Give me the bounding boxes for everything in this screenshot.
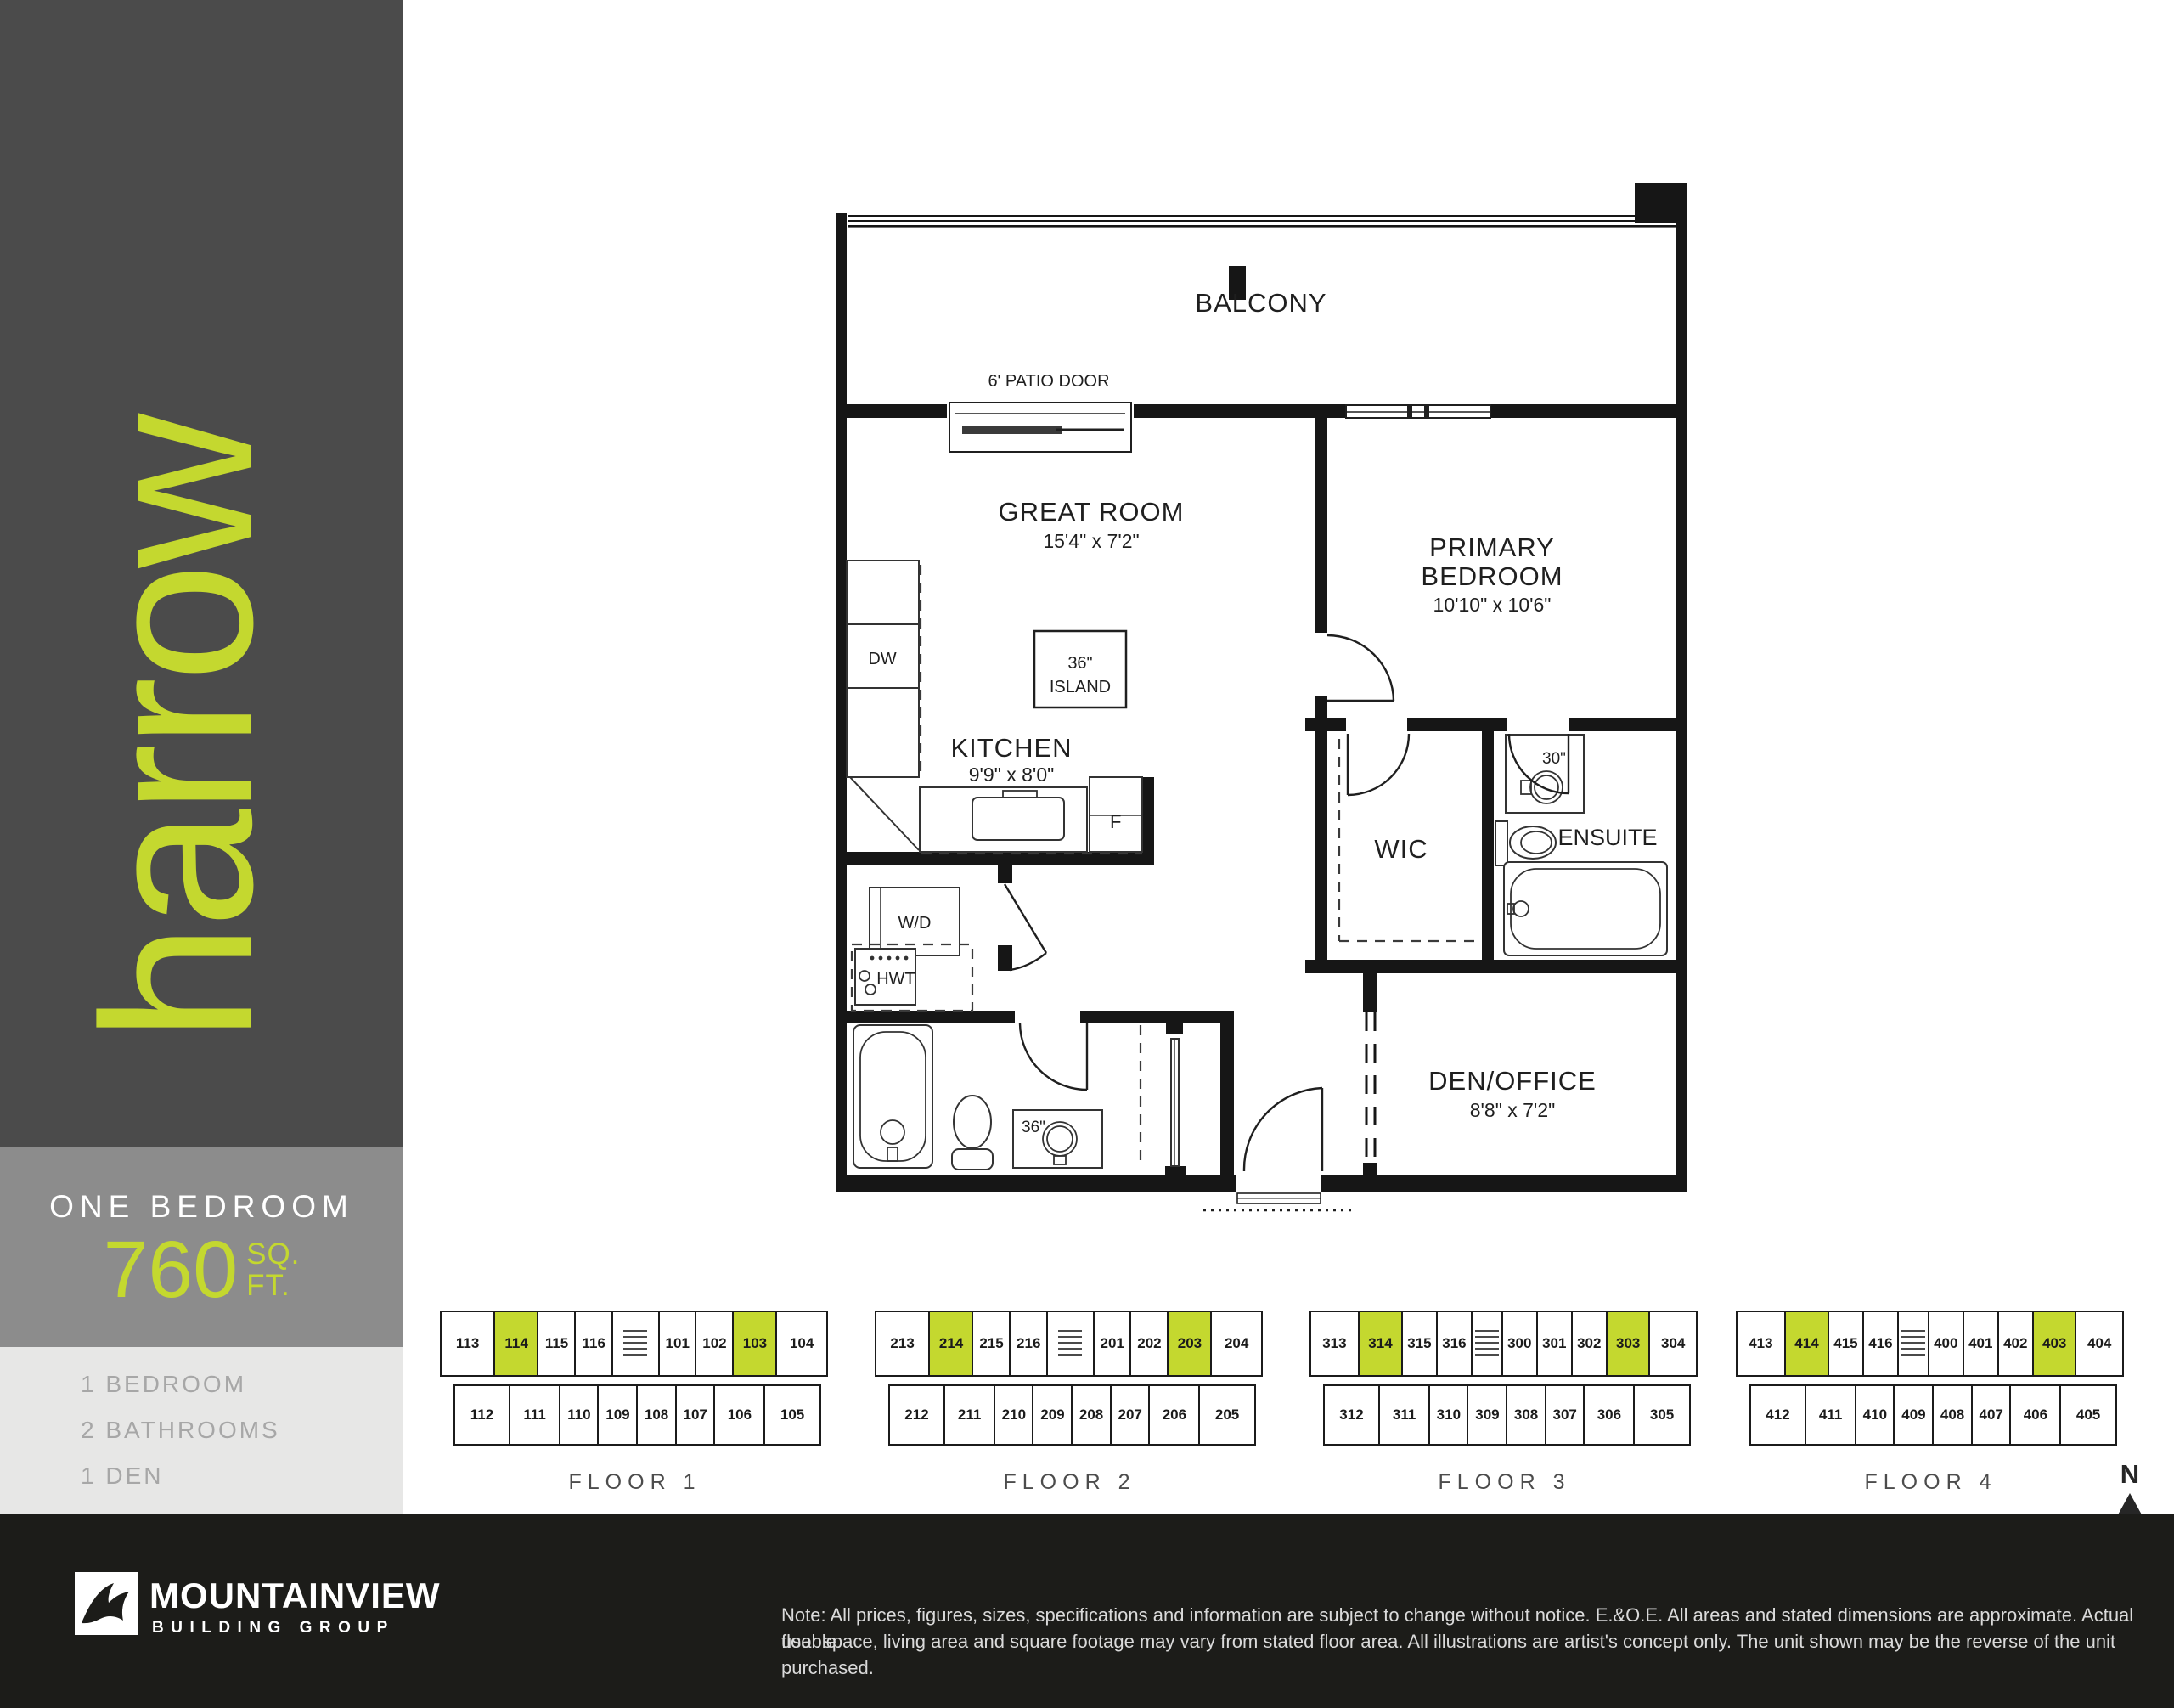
unit-cell: 110: [559, 1384, 600, 1446]
hwt-label: HWT: [876, 970, 915, 989]
unit-number: 212: [904, 1406, 928, 1423]
unit-number: 408: [1940, 1406, 1964, 1423]
unit-cell: 416: [1862, 1311, 1900, 1377]
kitchen-fixtures: [847, 561, 1142, 854]
unit-number: 300: [1507, 1335, 1531, 1352]
unit-cell-highlighted: 314: [1358, 1311, 1403, 1377]
floor-plate-3: 3133143153163003013023033043123113103093…: [1311, 1311, 1698, 1495]
unit-cell: 210: [994, 1384, 1034, 1446]
unit-cell: 206: [1148, 1384, 1200, 1446]
unit-cell: 304: [1648, 1311, 1698, 1377]
unit-number: 310: [1437, 1406, 1461, 1423]
north-label: N: [2111, 1459, 2149, 1490]
unit-number: 402: [2003, 1335, 2027, 1352]
unit-number: 410: [1863, 1406, 1887, 1423]
unit-number: 316: [1442, 1335, 1466, 1352]
unit-number: 114: [504, 1335, 527, 1352]
unit-cell: 305: [1633, 1384, 1691, 1446]
balcony-label: BALCONY: [1195, 288, 1326, 318]
unit-number: 102: [702, 1335, 726, 1352]
primary-bedroom-dims: 10'10" x 10'6": [1433, 594, 1552, 616]
unit-number: 404: [2087, 1335, 2111, 1352]
unit-cell: 104: [775, 1311, 828, 1377]
unit-cell-highlighted: 403: [2032, 1311, 2077, 1377]
unit-type-label: ONE BEDROOM: [49, 1189, 354, 1225]
unit-number: 115: [545, 1335, 568, 1352]
main-bath-fixtures: [853, 1025, 1102, 1170]
stairs-icon: [623, 1330, 647, 1357]
unit-cell: 410: [1855, 1384, 1895, 1446]
unit-number: 301: [1542, 1335, 1566, 1352]
unit-summary-band: ONE BEDROOM 760 SQ. FT.: [0, 1147, 403, 1347]
unit-number: 304: [1661, 1335, 1685, 1352]
plate-row-top: 213214215216201202203204: [876, 1311, 1263, 1377]
footer-brand-subtitle: BUILDING GROUP: [152, 1619, 395, 1638]
unit-cell: 315: [1401, 1311, 1439, 1377]
unit-cell: 106: [713, 1384, 765, 1446]
plate-row-bottom: 412411410409408407406405: [1751, 1384, 2117, 1446]
north-compass: N: [2111, 1459, 2149, 1518]
unit-cell: 215: [972, 1311, 1011, 1377]
den-office-dims: 8'8" x 7'2": [1470, 1099, 1556, 1121]
floor-plate-4: 4134144154164004014024034044124114104094…: [1738, 1311, 2124, 1495]
unit-cell: 300: [1501, 1311, 1539, 1377]
feature-den: 1 DEN: [81, 1463, 403, 1490]
unit-number: 315: [1407, 1335, 1431, 1352]
unit-number: 216: [1017, 1335, 1040, 1352]
unit-cell: 208: [1071, 1384, 1112, 1446]
floor-label: FLOOR 2: [876, 1470, 1263, 1495]
brand-wordmark: harrow: [72, 306, 293, 1155]
plate-row-bottom: 212211210209208207206205: [890, 1384, 1256, 1446]
unit-cell: 113: [440, 1311, 496, 1377]
unit-number: 214: [939, 1335, 963, 1352]
unit-cell: 405: [2059, 1384, 2117, 1446]
unit-cell: 406: [2009, 1384, 2061, 1446]
unit-area: 760 SQ. FT.: [104, 1233, 301, 1306]
unit-number: 409: [1901, 1406, 1925, 1423]
kitchen-dims: 9'9" x 8'0": [969, 764, 1055, 786]
feature-bedroom: 1 BEDROOM: [81, 1371, 403, 1398]
laundry-fixtures: [852, 888, 972, 1011]
unit-cell: 313: [1309, 1311, 1360, 1377]
mountainview-logo-icon: [75, 1572, 138, 1635]
unit-number: 303: [1616, 1335, 1640, 1352]
unit-cell-highlighted: 214: [928, 1311, 974, 1377]
unit-number: 414: [1794, 1335, 1818, 1352]
vanity-36-label: 36": [1022, 1119, 1045, 1136]
floor-plate-1: 1131141151161011021031041121111101091081…: [442, 1311, 828, 1495]
unit-cell: 209: [1032, 1384, 1073, 1446]
unit-number: 411: [1819, 1406, 1842, 1423]
unit-cell: 207: [1110, 1384, 1151, 1446]
area-units: SQ. FT.: [246, 1233, 300, 1301]
unit-number: 112: [470, 1406, 493, 1423]
primary-bedroom-label-2: BEDROOM: [1421, 561, 1563, 591]
unit-cell: 411: [1805, 1384, 1856, 1446]
unit-number: 205: [1215, 1406, 1239, 1423]
unit-number: 309: [1475, 1406, 1499, 1423]
dishwasher-label: DW: [868, 650, 896, 668]
unit-cell: 109: [597, 1384, 638, 1446]
unit-cell: 301: [1536, 1311, 1574, 1377]
unit-number: 210: [1002, 1406, 1026, 1423]
unit-number: 415: [1833, 1335, 1857, 1352]
disclaimer-line-2: floor space, living area and square foot…: [781, 1628, 2161, 1681]
fridge-label: F: [1110, 811, 1121, 832]
unit-cell: 101: [658, 1311, 697, 1377]
unit-cell: 402: [1997, 1311, 2035, 1377]
plate-row-top: 113114115116101102103104: [442, 1311, 828, 1377]
unit-number: 406: [2024, 1406, 2047, 1423]
unit-cell-highlighted: 414: [1784, 1311, 1829, 1377]
plate-row-bottom: 112111110109108107106105: [455, 1384, 821, 1446]
area-unit-ft: FT.: [246, 1270, 300, 1301]
den-dashed-wall: [1366, 1012, 1375, 1168]
unit-number: 106: [728, 1406, 752, 1423]
unit-number: 306: [1597, 1406, 1621, 1423]
unit-number: 416: [1868, 1335, 1892, 1352]
unit-cell: 205: [1198, 1384, 1256, 1446]
den-office-label: DEN/OFFICE: [1428, 1066, 1597, 1096]
unit-cell: 310: [1428, 1384, 1469, 1446]
unit-number: 207: [1118, 1406, 1141, 1423]
unit-number: 400: [1934, 1335, 1957, 1352]
bedroom-window: [1346, 405, 1490, 418]
plate-row-bottom: 312311310309308307306305: [1325, 1384, 1691, 1446]
unit-cell: 111: [509, 1384, 560, 1446]
unit-cell: 309: [1467, 1384, 1507, 1446]
unit-number: 105: [780, 1406, 804, 1423]
feature-bathrooms: 2 BATHROOMS: [81, 1417, 403, 1444]
unit-cell: 408: [1932, 1384, 1973, 1446]
unit-number: 412: [1766, 1406, 1789, 1423]
unit-floor-plan: BALCONY 6' PATIO DOOR GREAT ROOM 15'4" x…: [836, 183, 1703, 1219]
unit-number: 108: [645, 1406, 668, 1423]
unit-cell: 404: [2075, 1311, 2124, 1377]
unit-cell: 307: [1545, 1384, 1585, 1446]
unit-cell: 202: [1129, 1311, 1169, 1377]
unit-cell: 316: [1436, 1311, 1473, 1377]
plate-row-top: 413414415416400401402403404: [1738, 1311, 2124, 1377]
unit-number: 104: [790, 1335, 814, 1352]
unit-cell: 216: [1009, 1311, 1048, 1377]
washer-dryer-label: W/D: [898, 914, 932, 933]
unit-number: 109: [605, 1406, 629, 1423]
unit-cell: 115: [537, 1311, 576, 1377]
unit-cell: 108: [636, 1384, 677, 1446]
unit-number: 204: [1225, 1335, 1248, 1352]
unit-cell: 306: [1583, 1384, 1635, 1446]
unit-number: 201: [1101, 1335, 1124, 1352]
unit-cell: 407: [1971, 1384, 2012, 1446]
island-label: ISLAND: [1050, 678, 1111, 696]
unit-cell: 212: [888, 1384, 946, 1446]
stair-core: [1897, 1311, 1929, 1377]
page: { "colors": { "brand_lime": "#c4d82f", "…: [0, 0, 2174, 1708]
island-size-label: 36": [1067, 654, 1092, 673]
unit-cell-highlighted: 103: [732, 1311, 778, 1377]
stair-core: [1046, 1311, 1095, 1377]
unit-number: 308: [1514, 1406, 1538, 1423]
unit-number: 313: [1322, 1335, 1346, 1352]
stair-core: [611, 1311, 660, 1377]
entry-threshold: [1203, 1193, 1356, 1210]
unit-number: 116: [583, 1335, 605, 1352]
floor-plate-2: 2132142152162012022032042122112102092082…: [876, 1311, 1263, 1495]
area-value: 760: [104, 1233, 239, 1306]
unit-number: 110: [567, 1406, 590, 1423]
unit-cell: 308: [1506, 1384, 1546, 1446]
stair-core: [1471, 1311, 1503, 1377]
entry-closet: [1141, 1025, 1179, 1168]
unit-number: 311: [1393, 1406, 1416, 1423]
unit-number: 209: [1040, 1406, 1064, 1423]
plate-row-top: 313314315316300301302303304: [1311, 1311, 1698, 1377]
unit-number: 314: [1368, 1335, 1392, 1352]
unit-number: 405: [2076, 1406, 2100, 1423]
unit-cell: 311: [1378, 1384, 1430, 1446]
unit-number: 312: [1339, 1406, 1363, 1423]
primary-bedroom-label-1: PRIMARY: [1429, 533, 1555, 562]
wic-label: WIC: [1374, 834, 1428, 864]
features-band: 1 BEDROOM 2 BATHROOMS 1 DEN: [0, 1347, 403, 1514]
unit-cell: 213: [875, 1311, 931, 1377]
unit-number: 211: [958, 1406, 981, 1423]
great-room-dims: 15'4" x 7'2": [1043, 530, 1139, 552]
unit-number: 103: [743, 1335, 767, 1352]
unit-cell-highlighted: 203: [1167, 1311, 1213, 1377]
unit-number: 111: [523, 1406, 546, 1423]
stairs-icon: [1901, 1330, 1925, 1357]
unit-cell: 102: [695, 1311, 734, 1377]
unit-cell: 415: [1828, 1311, 1865, 1377]
unit-cell: 211: [943, 1384, 995, 1446]
unit-number: 305: [1650, 1406, 1674, 1423]
patio-door: [949, 403, 1131, 452]
ensuite-label: ENSUITE: [1557, 825, 1657, 850]
unit-number: 215: [979, 1335, 1003, 1352]
stairs-icon: [1475, 1330, 1499, 1357]
unit-number: 206: [1163, 1406, 1186, 1423]
unit-cell: 204: [1210, 1311, 1263, 1377]
great-room-label: GREAT ROOM: [999, 497, 1185, 527]
unit-number: 107: [683, 1406, 707, 1423]
unit-cell-highlighted: 303: [1606, 1311, 1651, 1377]
unit-cell: 400: [1928, 1311, 1965, 1377]
unit-number: 202: [1137, 1335, 1161, 1352]
unit-number: 307: [1552, 1406, 1576, 1423]
unit-number: 208: [1079, 1406, 1103, 1423]
unit-number: 302: [1577, 1335, 1601, 1352]
unit-cell: 201: [1093, 1311, 1132, 1377]
unit-number: 413: [1749, 1335, 1772, 1352]
unit-cell: 302: [1571, 1311, 1608, 1377]
footer-brand-name: MOUNTAINVIEW: [149, 1576, 441, 1616]
stairs-icon: [1058, 1330, 1082, 1357]
unit-number: 403: [2042, 1335, 2066, 1352]
walls: [836, 183, 1687, 1192]
unit-cell: 412: [1749, 1384, 1807, 1446]
unit-cell: 409: [1893, 1384, 1934, 1446]
unit-number: 203: [1178, 1335, 1202, 1352]
unit-number: 101: [666, 1335, 690, 1352]
unit-cell: 312: [1323, 1384, 1381, 1446]
unit-number: 213: [890, 1335, 914, 1352]
unit-cell-highlighted: 114: [493, 1311, 539, 1377]
unit-cell: 107: [675, 1384, 716, 1446]
floor-label: FLOOR 4: [1738, 1470, 2124, 1495]
unit-cell: 401: [1963, 1311, 2000, 1377]
kitchen-label: KITCHEN: [950, 733, 1072, 763]
unit-number: 407: [1979, 1406, 2002, 1423]
sidebar-panel: harrow: [0, 0, 403, 1147]
unit-cell: 105: [763, 1384, 821, 1446]
unit-number: 113: [456, 1335, 479, 1352]
area-unit-sq: SQ.: [246, 1238, 300, 1270]
unit-cell: 112: [453, 1384, 511, 1446]
vanity-30-label: 30": [1542, 750, 1566, 768]
floor-label: FLOOR 1: [442, 1470, 828, 1495]
unit-number: 401: [1968, 1335, 1992, 1352]
patio-door-label: 6' PATIO DOOR: [988, 372, 1109, 391]
unit-cell: 413: [1736, 1311, 1787, 1377]
floor-label: FLOOR 3: [1311, 1470, 1698, 1495]
unit-cell: 116: [574, 1311, 613, 1377]
